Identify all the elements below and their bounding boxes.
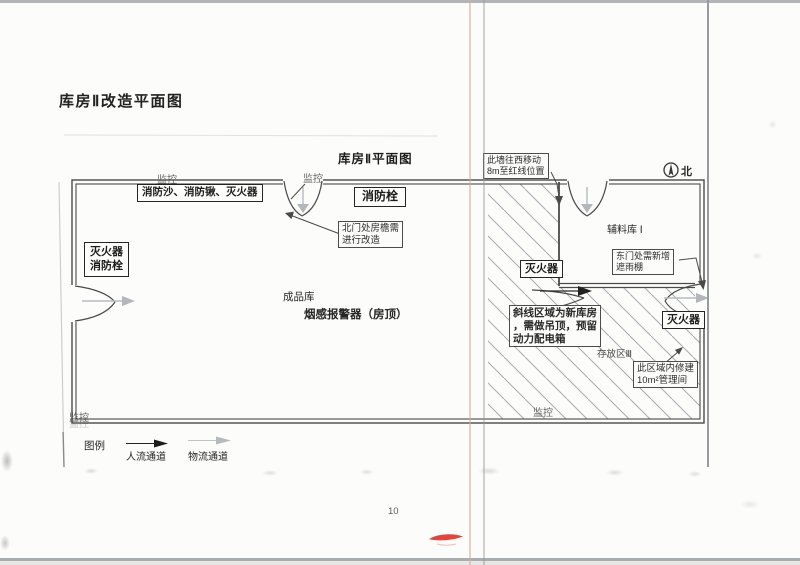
monitor-label-north-door: 监控	[303, 170, 323, 185]
callout-wall-move: 此墙往西移动 8m至红线位置	[483, 153, 549, 179]
west-extinguisher-line: 灭火器	[90, 245, 123, 259]
red-pen-mark	[429, 534, 463, 545]
callout-management-room: 此区域内修建 10m²管理间	[633, 361, 698, 388]
legend-title: 图例	[84, 438, 105, 453]
callout-wall-move-line2: 8m至红线位置	[487, 166, 545, 177]
fire-sand-shovel-extinguisher-box: 消防沙、消防锹、灭火器	[137, 184, 263, 202]
legend-people-flow-label: 人流通道	[126, 448, 166, 463]
mid-extinguisher-box: 灭火器	[520, 260, 563, 278]
fire-hydrant-box: 消防栓	[354, 187, 406, 207]
callout-north-door-eave: 北门处房檐需 进行改造	[338, 221, 403, 248]
callout-east-door-canopy: 东门处需新增 遮雨棚	[612, 249, 674, 275]
callout-north-door-line2: 进行改造	[342, 235, 399, 247]
monitor-label-bottom-middle: 监控	[533, 404, 553, 419]
callout-north-door-line1: 北门处房檐需	[342, 223, 399, 235]
label-auxiliary-warehouse: 辅料库 Ⅰ	[607, 221, 643, 236]
east-extinguisher-box: 灭火器	[662, 311, 705, 329]
north-compass-icon	[664, 163, 678, 177]
callout-east-door-line1: 东门处需新增	[616, 251, 670, 262]
legend-logistics-flow-label: 物流通道	[188, 448, 228, 463]
west-hydrant-line: 消防栓	[90, 259, 123, 273]
label-storage-area-3: 存放区Ⅲ	[597, 346, 632, 360]
scanned-document-page: 库房Ⅱ改造平面图	[0, 0, 800, 565]
floor-plan-drawing	[0, 0, 800, 565]
monitor-label-bottom-left: 监控	[69, 409, 89, 424]
callout-hatch-area-note: 斜线区域为新库房 ，需做吊顶，预留 动力配电箱	[509, 305, 601, 347]
label-smoke-detector: 烟感报警器（房顶）	[304, 306, 408, 322]
callout-wall-move-line1: 此墙往西移动	[487, 155, 545, 166]
callout-hatch-note-line3: 动力配电箱	[513, 333, 597, 346]
label-finished-goods-warehouse: 成品库	[283, 289, 315, 304]
page-number: 10	[388, 506, 399, 517]
callout-mgmt-room-line1: 此区域内修建	[637, 363, 694, 375]
callout-east-door-line2: 遮雨棚	[616, 262, 670, 273]
paper-edge-left	[59, 182, 64, 467]
callout-hatch-note-line2: ，需做吊顶，预留	[513, 320, 597, 333]
legend-logistics-arrow-icon	[188, 437, 231, 445]
legend-people-arrow-icon	[126, 440, 168, 448]
north-label: 北	[681, 163, 692, 179]
west-extinguisher-hydrant-box: 灭火器 消防栓	[84, 242, 129, 277]
callout-mgmt-room-line2: 10m²管理间	[637, 375, 694, 387]
bleed-through-line	[64, 135, 438, 136]
callout-hatch-note-line1: 斜线区域为新库房	[513, 307, 597, 320]
